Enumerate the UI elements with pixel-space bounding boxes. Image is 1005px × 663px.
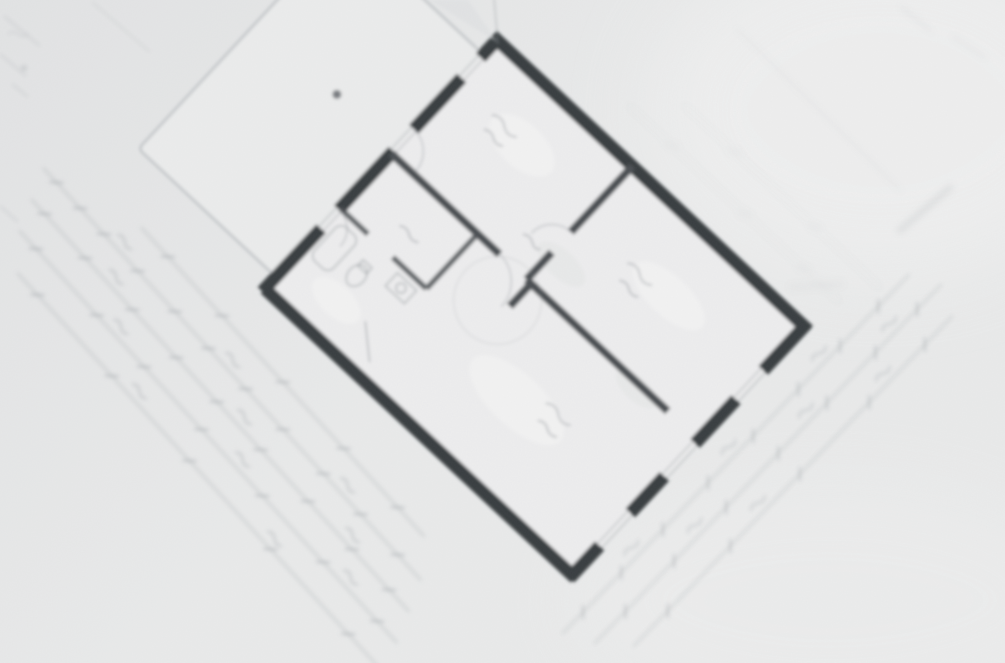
photo-grain: [0, 0, 1005, 663]
floor-plan-photo: [0, 0, 1005, 663]
floor-plan-photo-canvas: [0, 0, 1005, 663]
